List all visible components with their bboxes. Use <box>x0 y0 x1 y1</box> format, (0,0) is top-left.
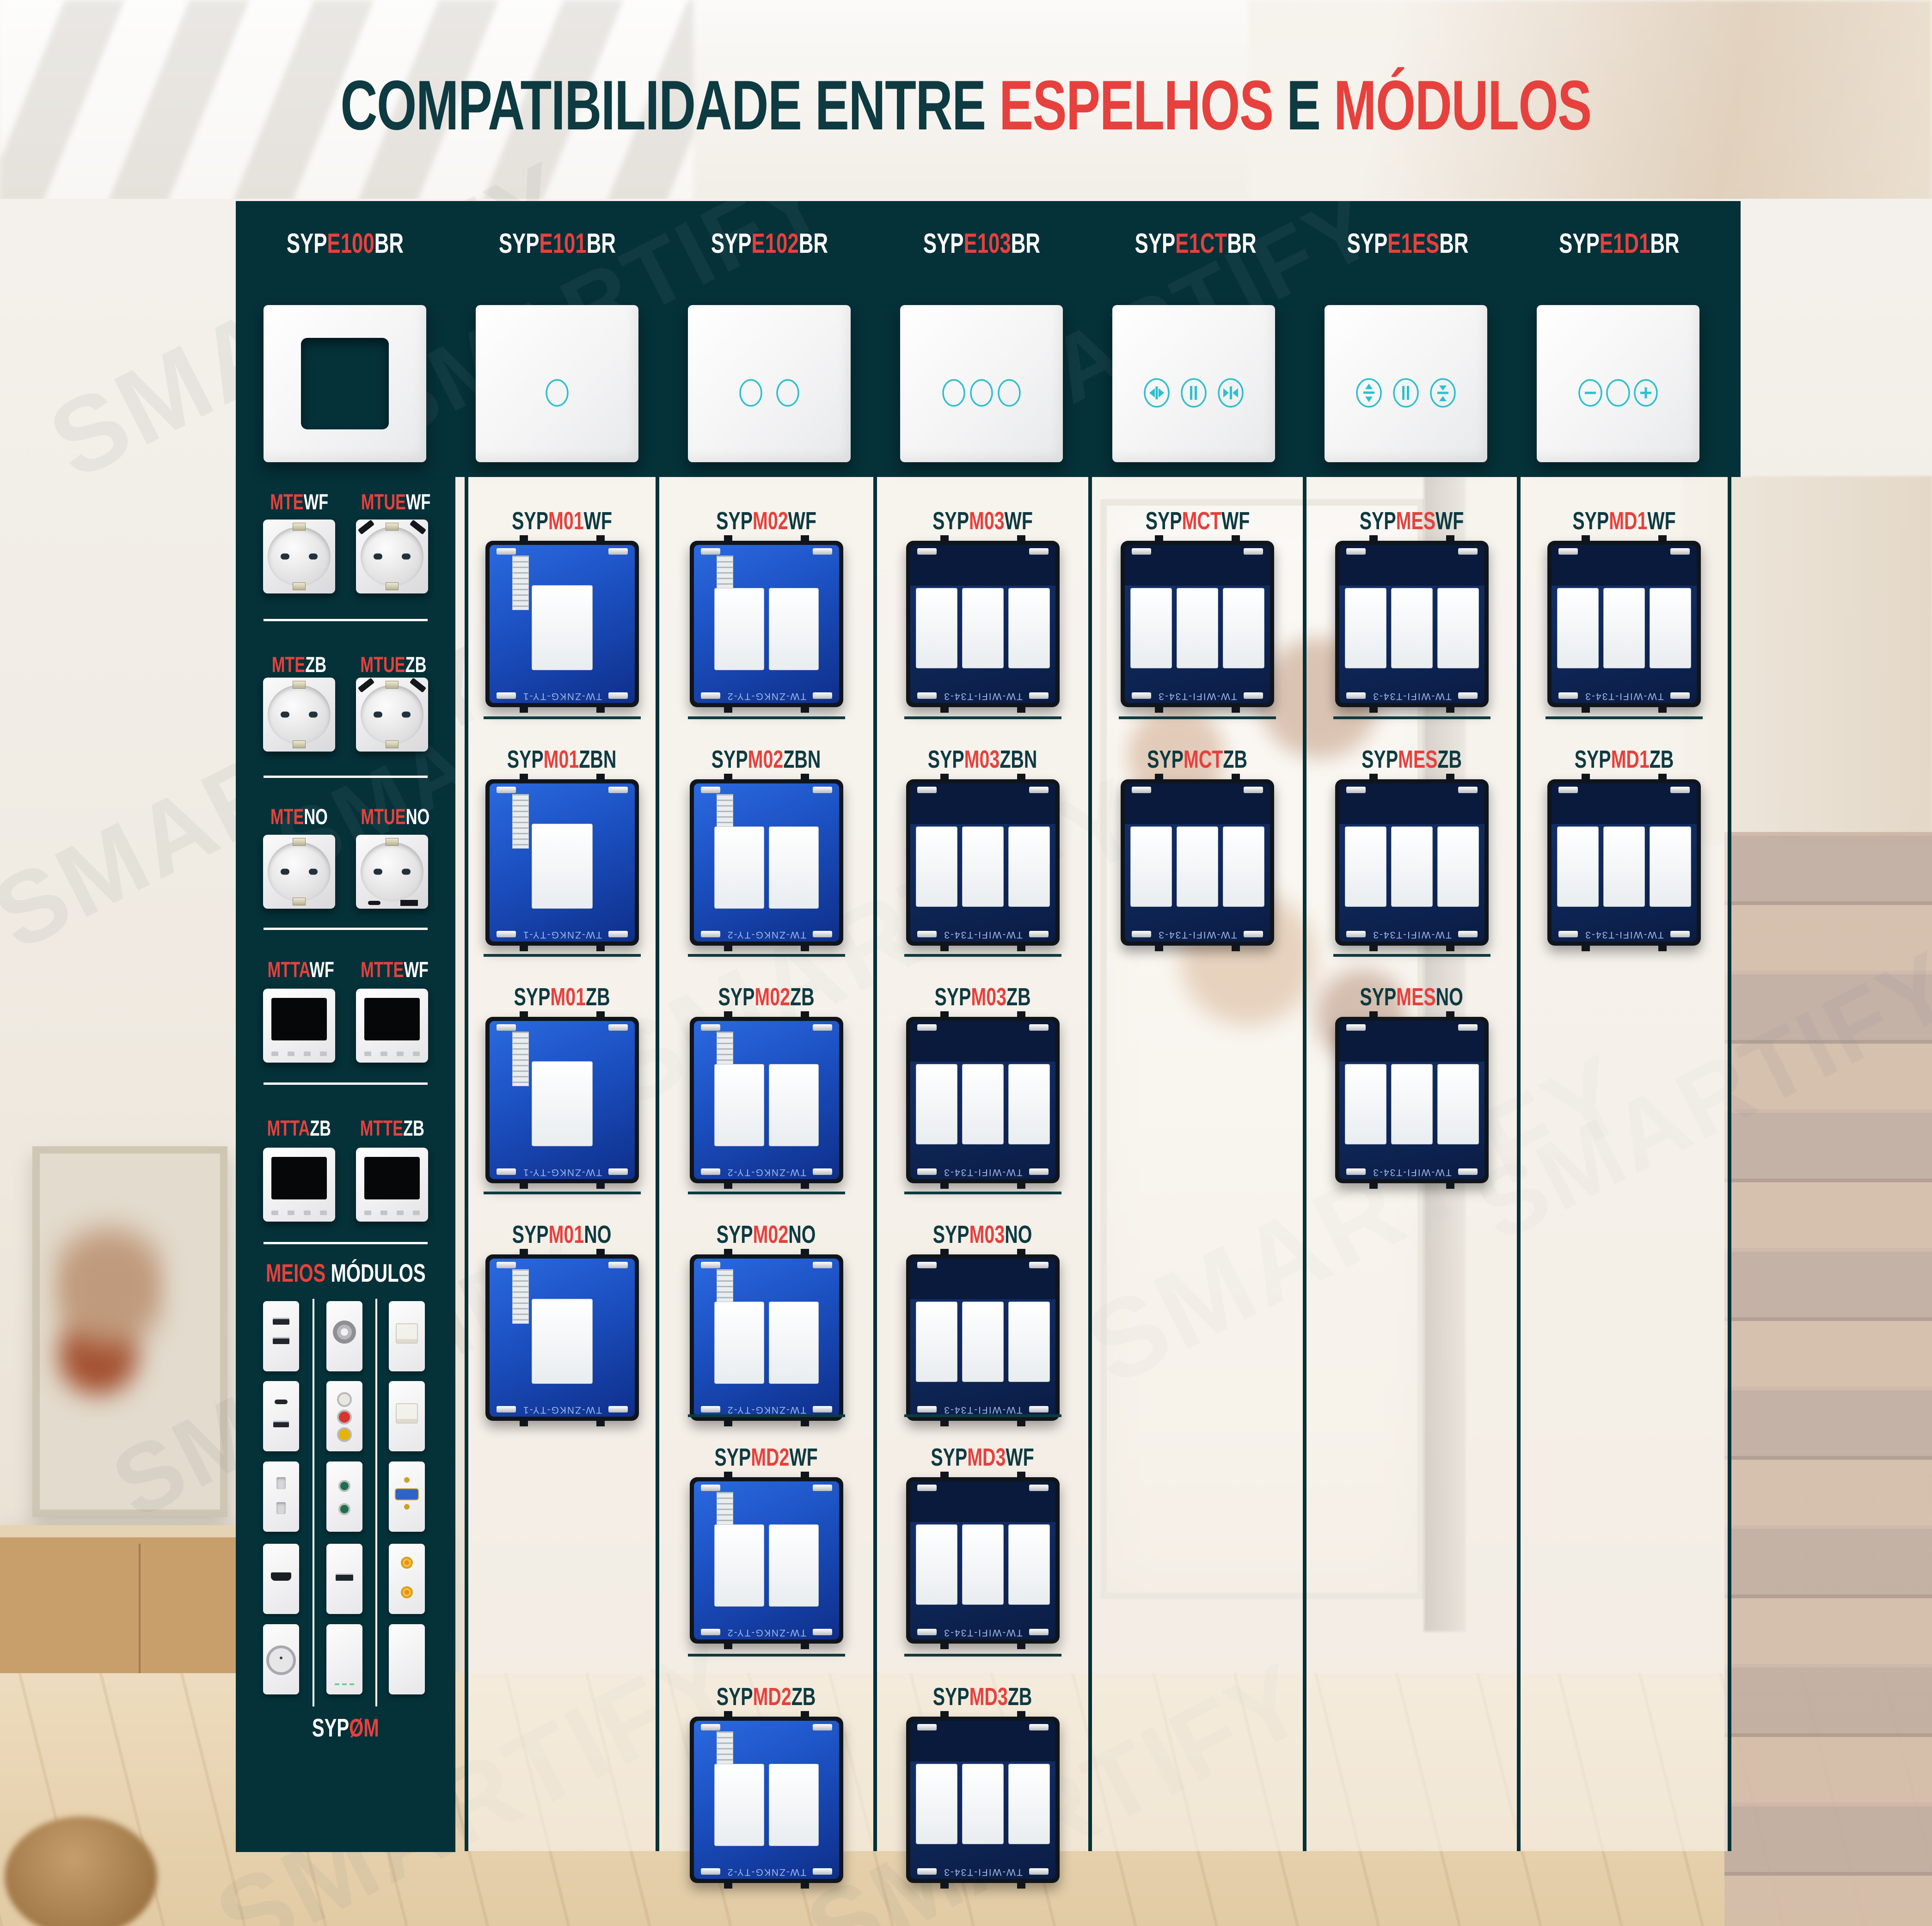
thermostat-module-photo <box>263 989 335 1063</box>
socket-usb-module-photo <box>356 520 428 593</box>
sidebar-label-mtewf: MTEWF <box>255 489 343 514</box>
module-photo-m03no: TW-WIFI-T34-3 <box>906 1254 1060 1421</box>
sat-connector-module <box>326 1301 362 1371</box>
vga-module <box>389 1461 425 1532</box>
column-divider <box>465 477 468 1851</box>
plate-label: SYPE1ESBR <box>1325 227 1487 259</box>
module-column-m01: SYPM01WF TW-ZNKG-TY-1 SYPM01ZBN TW-ZNKG-… <box>468 477 656 1851</box>
row-separator <box>904 716 1061 719</box>
row-separator <box>688 1192 845 1194</box>
module-column-m02: SYPM02WF TW-ZNKG-TY-2 SYPM02ZBN TW-ZNKG-… <box>659 477 873 1851</box>
stair-slats <box>1724 832 1932 1926</box>
usb-double-module <box>263 1301 299 1371</box>
sidebar-label-mtuewf: MTUEWF <box>348 489 436 514</box>
module-label: SYPMD1WF <box>1521 507 1728 535</box>
module-photo-m02zbn: TW-ZNKG-TY-2 <box>690 779 843 946</box>
module-photo-m02wf: TW-ZNKG-TY-2 <box>690 541 843 707</box>
row-separator <box>688 716 845 719</box>
rca-gold-double-module <box>389 1544 425 1614</box>
socket-module-photo <box>263 835 335 909</box>
row-separator <box>1546 716 1703 719</box>
faceplate-sype101br <box>476 305 638 462</box>
module-label: SYPMCTWF <box>1092 507 1303 535</box>
module-photo-m02no: TW-ZNKG-TY-2 <box>690 1254 843 1421</box>
rj45-module <box>389 1381 425 1451</box>
socket-module-photo <box>263 520 335 593</box>
module-photo-md1wf: TW-WIFI-T34-3 <box>1547 541 1701 707</box>
faceplate-sype1ctbr <box>1112 305 1275 462</box>
faceplate-sype1esbr <box>1325 305 1487 462</box>
column-divider <box>1728 477 1731 1851</box>
module-column-m03: SYPM03WF TW-WIFI-T34-3 SYPM03ZBN TW-WIFI… <box>877 477 1088 1851</box>
thermostat-module-photo <box>356 989 428 1063</box>
module-label: SYPMD3ZB <box>877 1682 1088 1711</box>
rj45-module <box>389 1301 425 1371</box>
row-separator <box>688 954 845 957</box>
sidebar-content: MTEWF MTUEWF MTEZB MTUEZB MTENO MTUENO M… <box>236 201 455 1852</box>
plate-label: SYPE1D1BR <box>1537 227 1699 259</box>
column-divider <box>1517 477 1521 1851</box>
sidebar-label-mttezb: MTTEZB <box>348 1115 436 1141</box>
curtain-control-icon <box>1136 370 1251 416</box>
module-label: SYPM03NO <box>877 1220 1088 1249</box>
row-separator <box>484 1192 641 1194</box>
dimmer-control-icon <box>1560 370 1676 416</box>
blank-module <box>389 1624 425 1694</box>
column-divider <box>656 477 659 1851</box>
sidebar-label-mtueno: MTUENO <box>348 804 436 829</box>
sypom-label: SYPØM <box>236 1713 455 1743</box>
module-label: SYPM03ZB <box>877 983 1088 1011</box>
module-label: SYPM02WF <box>659 507 873 535</box>
module-photo-m01wf: TW-ZNKG-TY-1 <box>485 541 639 707</box>
touch-3-circles-icon <box>924 370 1039 416</box>
page-title: COMPATIBILIDADE ENTRE ESPELHOS E MÓDULOS <box>0 70 1932 141</box>
plate-label: SYPE103BR <box>900 227 1063 259</box>
rca-triple-module <box>326 1381 362 1451</box>
sidebar-separator <box>264 1242 428 1244</box>
module-label: SYPMD2ZB <box>659 1682 873 1711</box>
module-photo-mctwf: TW-WIFI-T34-3 <box>1121 541 1274 707</box>
module-label: SYPMD3WF <box>877 1443 1088 1472</box>
sidebar-label-mttawf: MTTAWF <box>255 957 343 982</box>
module-label: SYPM03ZBN <box>877 745 1088 774</box>
module-photo-m02zb: TW-ZNKG-TY-2 <box>690 1017 843 1183</box>
thermostat-module-photo <box>356 1148 428 1222</box>
module-label: SYPM01ZB <box>468 983 656 1011</box>
module-label: SYPM03WF <box>877 507 1088 535</box>
module-label: SYPMESNO <box>1306 983 1517 1011</box>
row-separator <box>688 1654 845 1657</box>
row-separator <box>904 1414 1061 1417</box>
column-divider <box>1303 477 1306 1851</box>
module-photo-m03wf: TW-WIFI-T34-3 <box>906 541 1060 707</box>
module-photo-md2zb: TW-ZNKG-TY-2 <box>690 1717 843 1883</box>
module-photo-m01no: TW-ZNKG-TY-1 <box>485 1254 639 1421</box>
column-divider <box>1088 477 1092 1851</box>
module-photo-m03zb: TW-WIFI-T34-3 <box>906 1017 1060 1183</box>
jack-double-module <box>326 1461 362 1532</box>
module-label: SYPMD1ZB <box>1521 745 1728 774</box>
faceplate-sype103br <box>900 305 1063 462</box>
row-separator <box>484 954 641 957</box>
plate-label: SYPE1CTBR <box>1112 227 1275 259</box>
row-separator <box>484 716 641 719</box>
module-column-md1: SYPMD1WF TW-WIFI-T34-3 SYPMD1ZB TW-WIFI-… <box>1521 477 1728 1851</box>
row-separator <box>1333 954 1490 957</box>
module-label: SYPMESZB <box>1306 745 1517 774</box>
module-label: SYPM01NO <box>468 1220 656 1249</box>
module-photo-md3zb: TW-WIFI-T34-3 <box>906 1717 1060 1883</box>
sidebar-separator <box>264 776 428 778</box>
half-modules-divider <box>313 1299 314 1706</box>
module-photo-m01zbn: TW-ZNKG-TY-1 <box>485 779 639 946</box>
row-separator <box>1333 716 1490 719</box>
module-label: SYPM02NO <box>659 1220 873 1249</box>
plate-label: SYPE102BR <box>688 227 851 259</box>
module-photo-mctzb: TW-WIFI-T34-3 <box>1121 779 1274 946</box>
sidebar-label-mttewf: MTTEWF <box>348 957 436 982</box>
faceplate-sype102br <box>688 305 851 462</box>
module-photo-m01zb: TW-ZNKG-TY-1 <box>485 1017 639 1183</box>
module-label: SYPM02ZBN <box>659 745 873 774</box>
socket-module-photo <box>263 678 335 752</box>
sidebar-separator <box>264 619 428 621</box>
module-label: SYPM01WF <box>468 507 656 535</box>
module-photo-meswf: TW-WIFI-T34-3 <box>1335 541 1489 707</box>
hdmi-module <box>263 1544 299 1614</box>
half-modules-title: MEIOS MÓDULOS <box>236 1258 455 1288</box>
compatibility-infographic: SMARTIFY SMARTIFY SMARTIFY SMARTIFY SMAR… <box>0 0 1932 1926</box>
sidebar-label-mttazb: MTTAZB <box>255 1115 343 1141</box>
two-pin-socket-module <box>263 1461 299 1532</box>
row-separator <box>904 954 1061 957</box>
socket-usb-module-photo <box>356 678 428 752</box>
usb-data-module <box>326 1544 362 1614</box>
thermostat-module-photo <box>263 1148 335 1222</box>
module-photo-md3wf: TW-WIFI-T34-3 <box>906 1477 1060 1644</box>
module-photo-md2wf: TW-ZNKG-TY-2 <box>690 1477 843 1644</box>
usb-c-plus-a-module <box>263 1381 299 1451</box>
sidebar-separator <box>264 928 428 930</box>
half-modules-divider <box>375 1299 377 1706</box>
row-separator <box>688 1414 845 1417</box>
row-separator <box>904 1192 1061 1194</box>
row-separator <box>904 1654 1061 1657</box>
shutter-control-icon <box>1348 370 1464 416</box>
sidebar-label-mteno: MTENO <box>255 804 343 829</box>
socket-usb-c-module-photo <box>356 835 428 909</box>
wall-artwork <box>32 1146 227 1517</box>
plate-label: SYPE101BR <box>476 227 638 259</box>
module-label: SYPMD2WF <box>659 1443 873 1472</box>
sidebar-label-mtuezb: MTUEZB <box>348 652 436 677</box>
module-photo-meszb: TW-WIFI-T34-3 <box>1335 779 1489 946</box>
row-separator <box>1119 716 1276 719</box>
module-label: SYPM02ZB <box>659 983 873 1011</box>
touch-2-circles-icon <box>711 370 827 416</box>
module-column-mes: SYPMESWF TW-WIFI-T34-3 SYPMESZB TW-WIFI-… <box>1306 477 1517 1851</box>
faceplate-sype1d1br <box>1537 305 1699 462</box>
coax-tv-module <box>263 1624 299 1694</box>
module-photo-mesno: TW-WIFI-T34-3 <box>1335 1017 1489 1183</box>
blank-led-module <box>326 1624 362 1694</box>
touch-1-circle-icon <box>499 370 615 416</box>
module-photo-md1zb: TW-WIFI-T34-3 <box>1547 779 1701 946</box>
module-photo-m03zbn: TW-WIFI-T34-3 <box>906 779 1060 946</box>
module-label: SYPM01ZBN <box>468 745 656 774</box>
module-column-mct: SYPMCTWF TW-WIFI-T34-3 SYPMCTZB TW-WIFI-… <box>1092 477 1303 1851</box>
module-label: SYPMESWF <box>1306 507 1517 535</box>
column-divider <box>873 477 877 1851</box>
module-label: SYPMCTZB <box>1092 745 1303 774</box>
sidebar-separator <box>264 1082 428 1085</box>
sidebar-label-mtezb: MTEZB <box>255 652 343 677</box>
